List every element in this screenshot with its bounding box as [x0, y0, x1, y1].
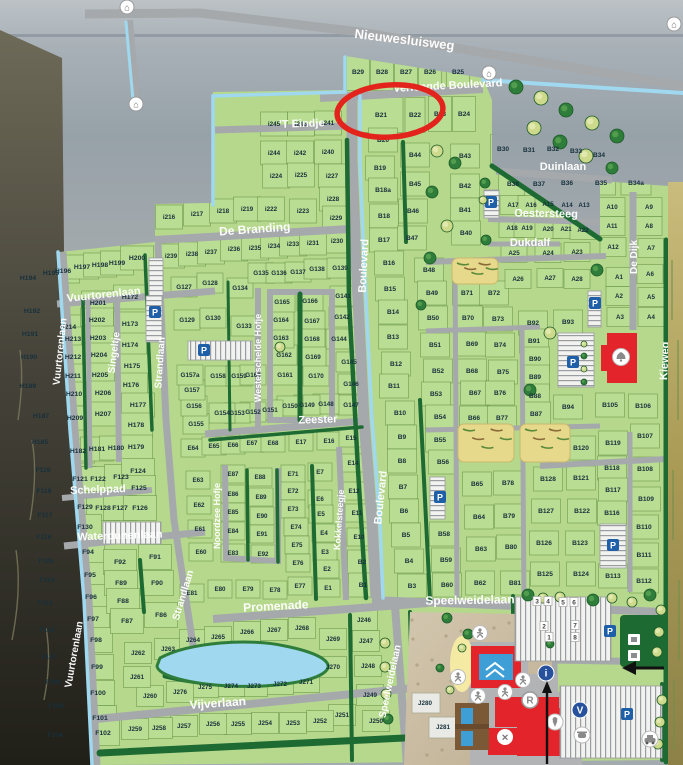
plot-label-E10[interactable]: E10	[353, 534, 365, 541]
plot-label-E2[interactable]: E2	[323, 566, 331, 573]
plot-label-B118[interactable]: B118	[604, 465, 620, 472]
plot-label-i238[interactable]: i238	[186, 251, 199, 258]
plot-label-G152[interactable]: G152	[245, 409, 261, 416]
plot-label-B24[interactable]: B24	[458, 111, 470, 118]
plot-label-B94[interactable]: B94	[562, 404, 574, 411]
plot-label-B123[interactable]: B123	[572, 540, 588, 547]
plot-label-B68[interactable]: B68	[466, 368, 478, 375]
plot-label-B81[interactable]: B81	[509, 580, 521, 587]
plot-label-A19[interactable]: A19	[521, 225, 533, 232]
plot-label-i229[interactable]: i229	[330, 215, 343, 222]
plot-label-J260[interactable]: J260	[143, 693, 158, 700]
plot-label-A13[interactable]: A13	[578, 202, 590, 209]
plot-label-F102[interactable]: F102	[95, 730, 111, 737]
plot-label-B40[interactable]: B40	[460, 230, 472, 237]
plot-label-B60[interactable]: B60	[441, 582, 453, 589]
plot-label-G167[interactable]: G167	[304, 318, 320, 325]
plot-label-J268[interactable]: J268	[295, 625, 310, 632]
plot-label-B121[interactable]: B121	[573, 475, 589, 482]
plot-label-H175[interactable]: H175	[124, 363, 140, 370]
plot-label-A24[interactable]: A24	[542, 250, 554, 257]
plot-label-J261[interactable]: J261	[130, 674, 145, 681]
plot-label-B110[interactable]: B110	[636, 524, 652, 531]
plot-label-B37[interactable]: B37	[533, 181, 545, 188]
plot-label-i217[interactable]: i217	[191, 211, 204, 218]
plot-label-F91[interactable]: F91	[149, 554, 161, 561]
plot-label-E90[interactable]: E90	[256, 513, 268, 520]
plot-label-B52[interactable]: B52	[432, 368, 444, 375]
plot-label-A15[interactable]: A15	[542, 201, 554, 208]
plot-label-B64[interactable]: B64	[473, 514, 485, 521]
plot-label-B27[interactable]: B27	[400, 69, 412, 76]
plot-label-B91[interactable]: B91	[528, 338, 540, 345]
plot-label-B36[interactable]: B36	[561, 180, 573, 187]
plot-label-B59[interactable]: B59	[440, 557, 452, 564]
plot-label-B48[interactable]: B48	[423, 267, 435, 274]
plot-label-F112[interactable]: F112	[39, 627, 54, 634]
plot-label-B49[interactable]: B49	[426, 290, 438, 297]
plot-label-A28[interactable]: A28	[571, 276, 583, 283]
plot-label-G157a[interactable]: G157a	[181, 372, 200, 379]
plot-label-B79[interactable]: B79	[503, 513, 515, 520]
plot-label-F125[interactable]: F125	[131, 485, 147, 492]
plot-label-F121[interactable]: F121	[72, 476, 88, 483]
plot-label-B1[interactable]: B1	[359, 582, 368, 589]
plot-label-E92[interactable]: E92	[257, 551, 269, 558]
plot-label-B25[interactable]: B25	[452, 69, 464, 76]
plot-label-G127[interactable]: G127	[176, 284, 192, 291]
plot-label-i228[interactable]: i228	[327, 196, 340, 203]
plot-label-B72[interactable]: B72	[488, 290, 500, 297]
plot-label-B5[interactable]: B5	[402, 532, 411, 539]
plot-label-B62[interactable]: B62	[474, 580, 486, 587]
plot-label-B34[interactable]: B34	[593, 152, 605, 159]
plot-label-F86[interactable]: F86	[155, 612, 167, 619]
plot-label-F87[interactable]: F87	[121, 618, 133, 625]
plot-label-E78[interactable]: E78	[269, 587, 281, 594]
plot-label-J274[interactable]: J274	[224, 683, 239, 690]
plot-label-B26[interactable]: B26	[424, 69, 436, 76]
plot-label-A12[interactable]: A12	[607, 244, 619, 251]
plot-label-F123[interactable]: F123	[113, 474, 129, 481]
plot-label-B7[interactable]: B7	[399, 484, 408, 491]
plot-label-B69[interactable]: B69	[466, 341, 478, 348]
plot-label-H185[interactable]: H185	[32, 439, 48, 446]
plot-label-B18[interactable]: B18	[378, 213, 390, 220]
plot-label-F129[interactable]: F129	[77, 504, 93, 511]
plot-label-E80[interactable]: E80	[214, 586, 226, 593]
plot-label-G153[interactable]: G153	[229, 410, 245, 417]
plot-label-F130[interactable]: F130	[77, 524, 93, 531]
plot-label-B15[interactable]: B15	[384, 286, 396, 293]
plot-label-E14[interactable]: E14	[347, 460, 359, 467]
plot-label-G129[interactable]: G129	[179, 317, 195, 324]
plot-label-J248[interactable]: J248	[361, 663, 376, 670]
plot-label-B125[interactable]: B125	[537, 571, 553, 578]
plot-label-F90[interactable]: F90	[151, 580, 163, 587]
plot-label-B112[interactable]: B112	[636, 578, 652, 585]
plot-label-B116[interactable]: B116	[604, 510, 620, 517]
plot-label-B127[interactable]: B127	[538, 508, 554, 515]
plot-label-F116[interactable]: F116	[36, 534, 51, 541]
plot-label-H196[interactable]: H196	[55, 268, 71, 275]
plot-label-i236[interactable]: i236	[228, 246, 241, 253]
plot-label-F126[interactable]: F126	[132, 505, 148, 512]
plot-label-i219[interactable]: i219	[241, 206, 254, 213]
plot-label-F92[interactable]: F92	[114, 559, 126, 566]
plot-label-J256[interactable]: J256	[206, 721, 221, 728]
plot-label-i237[interactable]: i237	[205, 249, 218, 256]
plot-label-B119[interactable]: B119	[605, 440, 621, 447]
plot-label-J255[interactable]: J255	[231, 721, 246, 728]
plot-label-i224[interactable]: i224	[270, 173, 283, 180]
plot-label-E7[interactable]: E7	[316, 469, 324, 476]
plot-label-E75[interactable]: E75	[291, 542, 303, 549]
plot-label-B107[interactable]: B107	[637, 433, 653, 440]
plot-label-E84[interactable]: E84	[227, 528, 239, 535]
plot-label-i235[interactable]: i235	[249, 245, 262, 252]
plot-label-J250[interactable]: J250	[369, 718, 384, 725]
plot-label-B113[interactable]: B113	[605, 573, 621, 580]
plot-label-E86[interactable]: E86	[227, 491, 239, 498]
plot-label-E73[interactable]: E73	[287, 506, 299, 513]
plot-label-A7[interactable]: A7	[647, 245, 655, 252]
plot-label-B75[interactable]: B75	[497, 369, 509, 376]
plot-label-A6[interactable]: A6	[646, 271, 654, 278]
plot-label-E60[interactable]: E60	[195, 549, 207, 556]
plot-label-E3[interactable]: E3	[321, 549, 329, 556]
plot-label-B13[interactable]: B13	[387, 334, 399, 341]
plot-label-B43[interactable]: B43	[459, 153, 471, 160]
plot-label-H182[interactable]: H182	[70, 448, 86, 455]
plot-label-E79[interactable]: E79	[242, 586, 254, 593]
plot-label-G155[interactable]: G155	[188, 421, 204, 428]
plot-label-B47[interactable]: B47	[406, 235, 418, 242]
plot-label-H211[interactable]: H211	[65, 373, 81, 380]
plot-label-E63[interactable]: E63	[192, 477, 204, 484]
plot-label-i231[interactable]: i231	[307, 240, 320, 247]
plot-label-G136[interactable]: G136	[271, 270, 287, 277]
plot-label-F127[interactable]: F127	[112, 505, 128, 512]
plot-label-F101[interactable]: F101	[92, 715, 108, 722]
plot-label-B63[interactable]: B63	[475, 546, 487, 553]
plot-label-F89[interactable]: F89	[115, 580, 127, 587]
plot-label-H198[interactable]: H198	[92, 262, 108, 269]
plot-label-G166[interactable]: G166	[302, 298, 318, 305]
plot-label-B50[interactable]: B50	[427, 315, 439, 322]
plot-label-H192[interactable]: H192	[24, 308, 40, 315]
plot-label-F119[interactable]: F119	[35, 467, 50, 474]
plot-label-G170[interactable]: G170	[308, 373, 324, 380]
plot-label-B78[interactable]: B78	[502, 480, 514, 487]
plot-label-G150[interactable]: G150	[282, 403, 298, 410]
plot-label-J272[interactable]: J272	[273, 681, 288, 688]
plot-label-E62[interactable]: E62	[193, 502, 205, 509]
plot-label-J275[interactable]: J275	[198, 684, 213, 691]
plot-label-B126[interactable]: B126	[536, 540, 552, 547]
plot-label-B88[interactable]: B88	[529, 393, 541, 400]
plot-label-E76[interactable]: E76	[292, 560, 304, 567]
plot-label-B41[interactable]: B41	[459, 207, 471, 214]
plot-label-B9[interactable]: B9	[398, 434, 407, 441]
plot-label-E67[interactable]: E67	[246, 440, 258, 447]
plot-label-i216[interactable]: i216	[163, 214, 176, 221]
plot-label-J276[interactable]: J276	[173, 689, 188, 696]
plot-label-E11[interactable]: E11	[352, 510, 363, 517]
plot-label-E89[interactable]: E89	[255, 494, 267, 501]
plot-label-H173[interactable]: H173	[122, 321, 138, 328]
plot-label-J262[interactable]: J262	[131, 650, 146, 657]
plot-label-E1[interactable]: E1	[324, 585, 332, 592]
plot-label-B92[interactable]: B92	[527, 320, 539, 327]
plot-label-E83[interactable]: E83	[227, 550, 239, 557]
plot-label-E16[interactable]: E16	[323, 438, 335, 445]
plot-label-A11[interactable]: A11	[606, 223, 618, 230]
plot-label-G135[interactable]: G135	[253, 270, 269, 277]
plot-label-E85[interactable]: E85	[227, 509, 239, 516]
plot-label-A26[interactable]: A26	[512, 276, 524, 283]
plot-label-G133[interactable]: G133	[236, 323, 252, 330]
plot-label-H187[interactable]: H187	[33, 413, 49, 420]
plot-label-B73[interactable]: B73	[492, 316, 504, 323]
plot-label-A10[interactable]: A10	[606, 204, 618, 211]
plot-label-i233[interactable]: i233	[287, 241, 300, 248]
plot-label-G142[interactable]: G142	[334, 314, 350, 321]
plot-label-B32[interactable]: B32	[547, 146, 559, 153]
plot-label-G128[interactable]: G128	[202, 280, 218, 287]
plot-label-B10[interactable]: B10	[394, 410, 406, 417]
plot-label-A3[interactable]: A3	[616, 314, 624, 321]
plot-label-G149[interactable]: G149	[299, 402, 315, 409]
plot-label-B93[interactable]: B93	[562, 319, 574, 326]
plot-label-J249[interactable]: J249	[363, 692, 378, 699]
plot-label-E17[interactable]: E17	[295, 439, 307, 446]
plot-label-H189[interactable]: H189	[20, 383, 36, 390]
plot-label-J280[interactable]: J280	[418, 700, 433, 707]
plot-label-B3[interactable]: B3	[408, 583, 417, 590]
plot-label-F106[interactable]: F106	[45, 679, 61, 686]
plot-label-B111[interactable]: B111	[636, 552, 651, 559]
plot-label-H194[interactable]: H194	[20, 275, 36, 282]
plot-label-E72[interactable]: E72	[287, 488, 299, 495]
plot-label-B54[interactable]: B54	[434, 414, 446, 421]
plot-label-J252[interactable]: J252	[313, 718, 328, 725]
plot-label-B74[interactable]: B74	[494, 342, 506, 349]
plot-label-B6[interactable]: B6	[400, 508, 409, 515]
plot-label-H197[interactable]: H197	[74, 264, 90, 271]
plot-label-H181[interactable]: H181	[89, 446, 105, 453]
plot-label-H199[interactable]: H199	[109, 260, 125, 267]
plot-label-B17[interactable]: B17	[378, 237, 390, 244]
plot-label-i222[interactable]: i222	[265, 206, 278, 213]
plot-label-B28[interactable]: B28	[376, 69, 388, 76]
plot-label-F117[interactable]: F117	[37, 512, 52, 519]
plot-label-G162[interactable]: G162	[276, 352, 292, 359]
plot-label-F105[interactable]: F105	[48, 703, 64, 710]
plot-label-E5[interactable]: E5	[317, 511, 325, 518]
plot-label-H179[interactable]: H179	[128, 444, 144, 451]
plot-label-F98[interactable]: F98	[90, 637, 102, 644]
plot-label-A23[interactable]: A23	[571, 249, 583, 256]
plot-label-E64[interactable]: E64	[187, 445, 199, 452]
plot-label-E12[interactable]: E12	[348, 488, 360, 495]
plot-label-B67[interactable]: B67	[469, 390, 481, 397]
plot-label-B108[interactable]: B108	[637, 466, 653, 473]
plot-label-B87[interactable]: B87	[530, 411, 542, 418]
plot-label-B38[interactable]: B38	[507, 181, 519, 188]
plot-label-B34a[interactable]: B34a	[628, 180, 644, 187]
plot-label-i223[interactable]: i223	[297, 208, 310, 215]
plot-label-F88[interactable]: F88	[117, 598, 129, 605]
plot-label-A21[interactable]: A21	[560, 226, 572, 233]
plot-label-H200[interactable]: H200	[129, 255, 145, 262]
plot-label-i240[interactable]: i240	[322, 149, 335, 156]
plot-label-G161[interactable]: G161	[277, 372, 293, 379]
plot-label-B65[interactable]: B65	[471, 481, 483, 488]
plot-label-i242[interactable]: i242	[294, 150, 307, 157]
plot-label-H210[interactable]: H210	[66, 391, 82, 398]
plot-label-J267[interactable]: J267	[267, 627, 282, 634]
plot-label-B70[interactable]: B70	[462, 315, 474, 322]
plot-label-G163[interactable]: G163	[273, 335, 289, 342]
plot-label-B30[interactable]: B30	[497, 146, 509, 153]
plot-label-G138[interactable]: G138	[309, 266, 325, 273]
plot-label-E77[interactable]: E77	[294, 583, 306, 590]
plot-label-B19[interactable]: B19	[374, 165, 386, 172]
plot-label-H176[interactable]: H176	[123, 382, 139, 389]
plot-label-H191[interactable]: H191	[22, 331, 38, 338]
plot-label-A8[interactable]: A8	[645, 223, 653, 230]
plot-label-H203[interactable]: H203	[90, 335, 106, 342]
plot-label-B105[interactable]: B105	[602, 402, 618, 409]
plot-label-G168[interactable]: G168	[304, 336, 320, 343]
plot-label-J251[interactable]: J251	[335, 712, 350, 719]
plot-label-G165[interactable]: G165	[274, 299, 290, 306]
plot-label-A25[interactable]: A25	[508, 250, 520, 257]
plot-label-F96[interactable]: F96	[85, 594, 97, 601]
plot-label-G151[interactable]: G151	[262, 407, 278, 414]
plot-label-G157[interactable]: G157	[184, 387, 200, 394]
plot-label-B51[interactable]: B51	[429, 342, 441, 349]
plot-label-J273[interactable]: J273	[247, 683, 262, 690]
plot-label-G169[interactable]: G169	[305, 354, 321, 361]
plot-label-B53[interactable]: B53	[430, 391, 442, 398]
plot-label-J253[interactable]: J253	[286, 720, 301, 727]
plot-label-B31[interactable]: B31	[523, 147, 535, 154]
plot-label-E61[interactable]: E61	[194, 526, 206, 533]
plot-label-G144[interactable]: G144	[331, 336, 347, 343]
plot-label-E65[interactable]: E65	[208, 443, 220, 450]
plot-label-J281[interactable]: J281	[436, 724, 451, 731]
plot-label-B21[interactable]: B21	[375, 112, 387, 119]
plot-label-F128[interactable]: F128	[95, 505, 111, 512]
plot-label-A18[interactable]: A18	[506, 225, 518, 232]
plot-label-i230[interactable]: i230	[331, 238, 344, 245]
plot-label-B56[interactable]: B56	[437, 459, 449, 466]
plot-label-F94[interactable]: F94	[82, 549, 94, 556]
plot-label-B117[interactable]: B117	[605, 487, 621, 494]
plot-label-E87[interactable]: E87	[227, 471, 239, 478]
plot-label-i225[interactable]: i225	[295, 172, 308, 179]
plot-label-H202[interactable]: H202	[89, 317, 105, 324]
plot-label-B80[interactable]: B80	[505, 544, 517, 551]
plot-label-H206[interactable]: H206	[95, 390, 111, 397]
plot-label-E91[interactable]: E91	[256, 531, 268, 538]
plot-label-A27[interactable]: A27	[544, 275, 556, 282]
plot-label-F100[interactable]: F100	[90, 690, 106, 697]
plot-label-i239[interactable]: i239	[165, 253, 178, 260]
plot-label-B44[interactable]: B44	[409, 152, 421, 159]
plot-label-H180[interactable]: H180	[108, 445, 124, 452]
plot-label-B33[interactable]: B33	[570, 148, 582, 155]
plot-label-B89[interactable]: B89	[529, 374, 541, 381]
plot-label-B2[interactable]: B2	[358, 559, 367, 566]
plot-label-B46[interactable]: B46	[407, 208, 419, 215]
plot-label-B76[interactable]: B76	[494, 390, 506, 397]
plot-label-F115[interactable]: F115	[38, 558, 53, 565]
plot-label-H209[interactable]: H209	[67, 415, 83, 422]
plot-label-G145[interactable]: G145	[341, 359, 357, 366]
plot-label-B124[interactable]: B124	[573, 571, 589, 578]
plot-label-B8[interactable]: B8	[398, 458, 407, 465]
plot-label-G146[interactable]: G146	[343, 381, 359, 388]
plot-label-G139[interactable]: G139	[332, 265, 348, 272]
plot-label-A4[interactable]: A4	[647, 314, 655, 321]
plot-label-J271[interactable]: J271	[299, 679, 314, 686]
plot-label-A5[interactable]: A5	[647, 294, 655, 301]
plot-label-i227[interactable]: i227	[326, 173, 339, 180]
plot-label-H178[interactable]: H178	[128, 422, 144, 429]
plot-label-F124[interactable]: F124	[130, 468, 146, 475]
plot-label-E71[interactable]: E71	[287, 471, 299, 478]
plot-label-G141[interactable]: G141	[335, 293, 351, 300]
plot-label-B106[interactable]: B106	[635, 403, 651, 410]
plot-label-F113[interactable]: F113	[37, 600, 52, 607]
plot-label-B77[interactable]: B77	[496, 415, 508, 422]
plot-label-A2[interactable]: A2	[615, 293, 623, 300]
plot-label-A9[interactable]: A9	[645, 204, 653, 211]
plot-label-F104[interactable]: F104	[47, 732, 63, 739]
plot-label-B16[interactable]: B16	[383, 260, 395, 267]
plot-label-H204[interactable]: H204	[91, 352, 107, 359]
plot-label-H177[interactable]: H177	[130, 402, 146, 409]
plot-label-B71[interactable]: B71	[461, 290, 473, 297]
plot-label-J270[interactable]: J270	[326, 664, 341, 671]
plot-label-B22[interactable]: B22	[409, 112, 421, 119]
plot-label-A1[interactable]: A1	[615, 274, 623, 281]
plot-label-B18a[interactable]: B18a	[375, 187, 391, 194]
plot-label-B122[interactable]: B122	[574, 508, 590, 515]
plot-label-J263[interactable]: J263	[161, 646, 176, 653]
plot-label-B128[interactable]: B128	[540, 476, 556, 483]
plot-label-J259[interactable]: J259	[128, 726, 143, 733]
plot-label-G137[interactable]: G137	[290, 269, 306, 276]
plot-label-F114[interactable]: F114	[39, 577, 54, 584]
plot-label-A22[interactable]: A22	[577, 227, 589, 234]
plot-label-E68[interactable]: E68	[267, 440, 279, 447]
plot-label-F107[interactable]: F107	[41, 654, 57, 661]
plot-label-B12[interactable]: B12	[390, 361, 402, 368]
plot-label-G134[interactable]: G134	[232, 285, 248, 292]
plot-label-E74[interactable]: E74	[290, 524, 302, 531]
plot-label-E4[interactable]: E4	[320, 530, 328, 537]
plot-label-E88[interactable]: E88	[254, 474, 266, 481]
plot-label-J246[interactable]: J246	[357, 617, 372, 624]
plot-label-G154[interactable]: G154	[214, 410, 230, 417]
plot-label-J266[interactable]: J266	[240, 629, 255, 636]
plot-label-B14[interactable]: B14	[387, 309, 399, 316]
plot-label-A20[interactable]: A20	[542, 226, 554, 233]
